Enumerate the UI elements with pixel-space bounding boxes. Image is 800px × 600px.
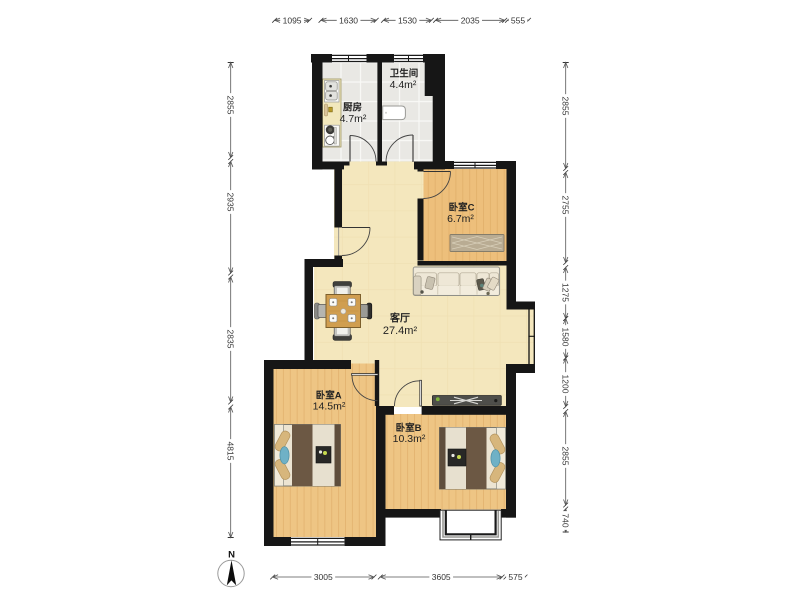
svg-text:2755: 2755 [561, 196, 571, 215]
svg-text:2855: 2855 [561, 97, 571, 116]
svg-text:客厅: 客厅 [389, 312, 410, 325]
svg-text:3605: 3605 [432, 572, 451, 582]
svg-text:6.7m²: 6.7m² [447, 213, 474, 225]
svg-text:厨房: 厨房 [343, 102, 362, 114]
svg-text:1200: 1200 [561, 375, 571, 394]
svg-text:2035: 2035 [461, 16, 480, 26]
svg-text:2855: 2855 [226, 96, 236, 115]
svg-text:卫生间: 卫生间 [390, 68, 419, 80]
svg-text:1630: 1630 [339, 16, 358, 26]
svg-text:2855: 2855 [561, 447, 571, 466]
svg-text:3005: 3005 [314, 572, 333, 582]
svg-text:740: 740 [561, 513, 571, 527]
svg-text:卧室C: 卧室C [449, 202, 475, 214]
svg-text:14.5m²: 14.5m² [313, 401, 346, 413]
svg-text:2935: 2935 [226, 193, 236, 212]
svg-text:575: 575 [508, 572, 522, 582]
svg-text:4.7m²: 4.7m² [340, 113, 367, 125]
svg-text:4815: 4815 [226, 442, 236, 461]
svg-text:1530: 1530 [398, 16, 417, 26]
svg-text:10.3m²: 10.3m² [393, 433, 426, 445]
svg-text:555: 555 [511, 16, 525, 26]
svg-text:N: N [228, 550, 235, 561]
svg-text:27.4m²: 27.4m² [383, 325, 418, 337]
svg-text:2835: 2835 [226, 330, 236, 349]
svg-text:1580: 1580 [561, 328, 571, 347]
svg-text:1275: 1275 [561, 283, 571, 302]
svg-text:1095: 1095 [283, 16, 302, 26]
svg-text:4.4m²: 4.4m² [390, 79, 417, 91]
